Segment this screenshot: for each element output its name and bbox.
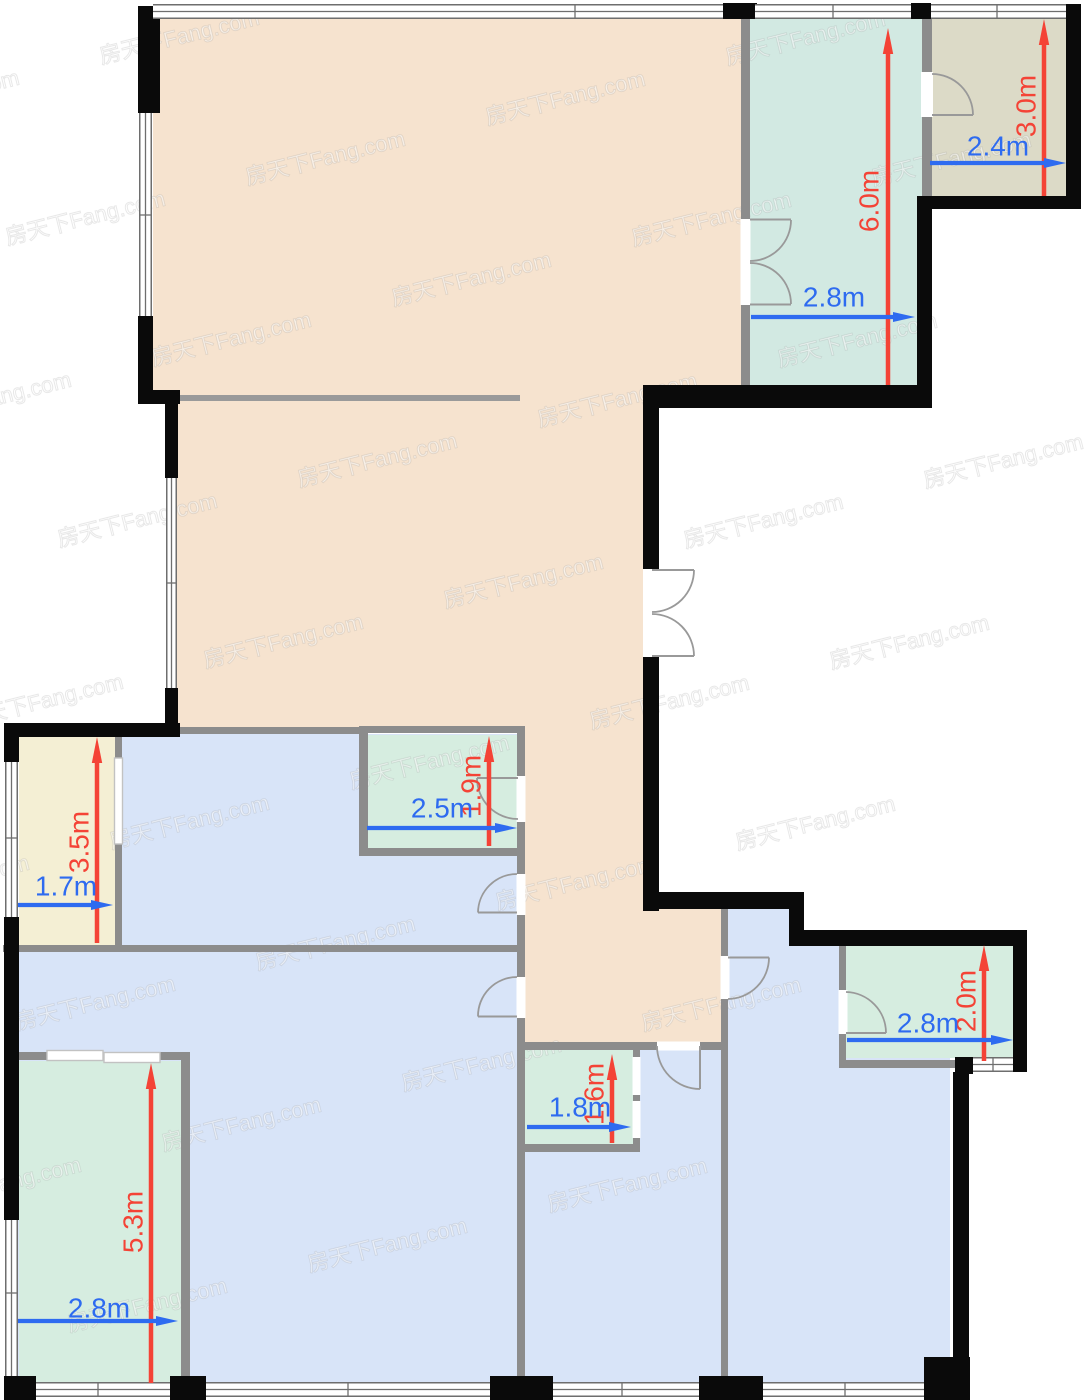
- svg-text:房天下Fang.com: 房天下Fang.com: [827, 610, 992, 674]
- svg-text:1.8m: 1.8m: [549, 1092, 611, 1123]
- svg-text:5.3m: 5.3m: [118, 1191, 149, 1253]
- svg-text:3.5m: 3.5m: [64, 811, 95, 873]
- svg-text:6.0m: 6.0m: [854, 170, 885, 232]
- svg-text:1.7m: 1.7m: [35, 871, 97, 902]
- svg-text:3.0m: 3.0m: [1011, 75, 1042, 137]
- svg-text:2.5m: 2.5m: [411, 793, 473, 824]
- svg-text:房天下Fang.com: 房天下Fang.com: [0, 367, 74, 431]
- svg-text:房天下Fang.com: 房天下Fang.com: [921, 429, 1085, 493]
- svg-text:房天下Fang.com: 房天下Fang.com: [681, 489, 846, 553]
- svg-text:房天下Fang.com: 房天下Fang.com: [733, 791, 898, 855]
- svg-text:2.8m: 2.8m: [897, 1008, 959, 1039]
- svg-text:2.8m: 2.8m: [68, 1293, 130, 1324]
- svg-text:2.4m: 2.4m: [967, 131, 1029, 162]
- svg-text:房天下Fang.com: 房天下Fang.com: [0, 65, 22, 129]
- svg-text:2.8m: 2.8m: [803, 282, 865, 313]
